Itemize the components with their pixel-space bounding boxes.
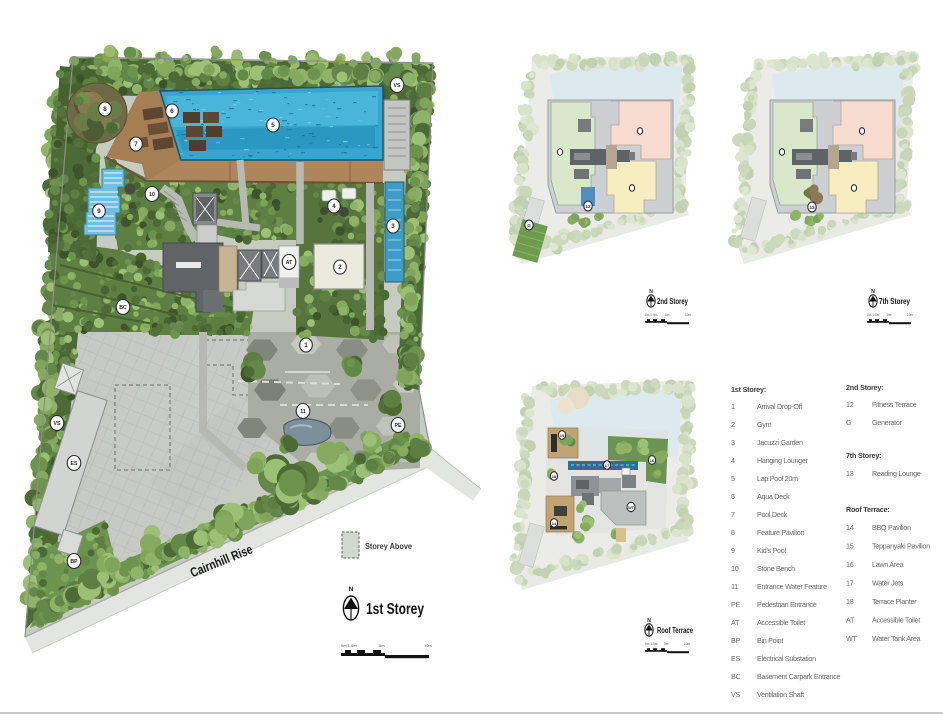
svg-text:ES: ES	[731, 654, 740, 663]
svg-text:6: 6	[170, 108, 174, 115]
svg-text:BC: BC	[119, 305, 127, 311]
svg-text:10m: 10m	[685, 313, 692, 317]
svg-text:10m: 10m	[684, 642, 691, 646]
svg-text:N: N	[349, 586, 354, 593]
svg-text:5m: 5m	[887, 313, 892, 317]
svg-text:10m: 10m	[424, 643, 432, 648]
svg-text:7: 7	[731, 510, 735, 519]
svg-text:0m 1.5m: 0m 1.5m	[867, 313, 880, 317]
svg-text:Arrival Drop-Off: Arrival Drop-Off	[757, 402, 802, 411]
svg-text:Ventilation Shaft: Ventilation Shaft	[757, 690, 804, 699]
svg-text:Roof Terrace: Roof Terrace	[657, 626, 693, 635]
svg-text:AT: AT	[731, 618, 740, 627]
svg-text:1: 1	[731, 402, 735, 411]
svg-text:0m 1.5m: 0m 1.5m	[645, 313, 658, 317]
svg-text:Accessible Toilet: Accessible Toilet	[872, 616, 920, 625]
svg-text:WT: WT	[846, 634, 857, 643]
svg-text:WT: WT	[628, 506, 634, 510]
svg-text:Water Tank Area: Water Tank Area	[872, 634, 921, 643]
svg-text:10: 10	[149, 192, 155, 198]
svg-text:7th Storey: 7th Storey	[879, 297, 910, 306]
svg-text:Jacuzzi Garden: Jacuzzi Garden	[757, 438, 803, 447]
svg-text:Gym: Gym	[757, 420, 772, 429]
svg-text:G: G	[527, 223, 531, 228]
svg-text:13: 13	[809, 205, 815, 210]
svg-text:2nd Storey:: 2nd Storey:	[846, 383, 883, 392]
svg-text:2: 2	[731, 420, 735, 429]
svg-text:BC: BC	[731, 672, 740, 681]
svg-text:2: 2	[338, 264, 342, 271]
svg-text:Aqua Deck: Aqua Deck	[757, 492, 790, 501]
svg-text:Accessible Toilet: Accessible Toilet	[757, 618, 805, 627]
svg-text:VS: VS	[731, 690, 740, 699]
svg-text:Bin Point: Bin Point	[757, 636, 783, 645]
svg-text:G: G	[846, 418, 852, 427]
svg-text:18: 18	[552, 474, 557, 479]
svg-text:9: 9	[731, 546, 735, 555]
svg-text:15: 15	[560, 433, 565, 438]
svg-text:Kid's Pool: Kid's Pool	[757, 546, 786, 555]
svg-text:10: 10	[731, 564, 739, 573]
svg-text:17: 17	[605, 463, 610, 468]
svg-text:7: 7	[134, 141, 138, 148]
svg-text:Pedestrian Entrance: Pedestrian Entrance	[757, 600, 817, 609]
svg-text:PE: PE	[395, 423, 402, 429]
svg-text:Hanging Lounger: Hanging Lounger	[757, 456, 809, 465]
svg-text:8: 8	[103, 106, 107, 113]
svg-text:Basement Carpark Entrance: Basement Carpark Entrance	[757, 672, 840, 681]
svg-text:9: 9	[97, 208, 101, 215]
svg-text:0m 1.5m: 0m 1.5m	[341, 643, 357, 648]
svg-text:18: 18	[846, 597, 854, 606]
svg-text:5m: 5m	[664, 642, 669, 646]
svg-text:3: 3	[731, 438, 735, 447]
svg-text:1st Storey: 1st Storey	[366, 601, 424, 618]
svg-text:1: 1	[304, 342, 308, 349]
svg-text:6: 6	[731, 492, 735, 501]
svg-text:N: N	[871, 289, 875, 295]
svg-text:BP: BP	[70, 559, 78, 565]
svg-text:Storey Above: Storey Above	[365, 541, 412, 551]
svg-text:Reading Lounge: Reading Lounge	[872, 469, 921, 478]
svg-text:VS: VS	[394, 83, 401, 89]
svg-text:3: 3	[391, 223, 395, 230]
svg-text:4: 4	[332, 203, 336, 210]
svg-text:Teppanyaki Pavilion: Teppanyaki Pavilion	[872, 542, 930, 551]
svg-text:4: 4	[731, 456, 735, 465]
svg-text:BP: BP	[731, 636, 740, 645]
svg-text:Lawn Area: Lawn Area	[872, 560, 904, 569]
svg-text:0m 1.5m: 0m 1.5m	[645, 642, 658, 646]
svg-text:5m: 5m	[379, 643, 385, 648]
svg-text:Lap Pool 20m: Lap Pool 20m	[757, 474, 798, 483]
svg-text:7th Storey:: 7th Storey:	[846, 451, 881, 460]
svg-text:Water Jets: Water Jets	[872, 579, 904, 588]
svg-text:Stone Bench: Stone Bench	[757, 564, 795, 573]
svg-text:AT: AT	[846, 616, 855, 625]
svg-text:Pool Deck: Pool Deck	[757, 510, 788, 519]
svg-text:Roof Terrace:: Roof Terrace:	[846, 505, 890, 514]
svg-text:11: 11	[300, 409, 306, 415]
svg-text:12: 12	[585, 204, 591, 209]
svg-text:16: 16	[846, 560, 854, 569]
svg-text:BBQ Pavilion: BBQ Pavilion	[872, 523, 911, 532]
svg-text:Entrance Water Feature: Entrance Water Feature	[757, 582, 827, 591]
svg-text:VS: VS	[54, 421, 61, 427]
svg-text:17: 17	[846, 579, 854, 588]
svg-text:10m: 10m	[907, 313, 914, 317]
svg-text:N: N	[647, 618, 651, 624]
svg-text:14: 14	[552, 521, 557, 526]
svg-text:5: 5	[731, 474, 735, 483]
svg-text:Fitness Terrace: Fitness Terrace	[872, 400, 917, 409]
svg-text:16: 16	[650, 458, 655, 463]
svg-text:15: 15	[846, 542, 854, 551]
svg-text:Generator: Generator	[872, 418, 903, 427]
svg-text:5: 5	[271, 122, 275, 129]
svg-text:8: 8	[731, 528, 735, 537]
svg-text:11: 11	[731, 582, 738, 591]
svg-text:5m: 5m	[665, 313, 670, 317]
svg-text:Terrace Planter: Terrace Planter	[872, 597, 917, 606]
svg-text:2nd Storey: 2nd Storey	[657, 297, 688, 306]
svg-text:1st Storey:: 1st Storey:	[731, 385, 766, 394]
svg-text:13: 13	[846, 469, 854, 478]
svg-text:ES: ES	[71, 461, 78, 467]
svg-text:PE: PE	[731, 600, 740, 609]
svg-text:Feature Pavilion: Feature Pavilion	[757, 528, 804, 537]
svg-text:12: 12	[846, 400, 854, 409]
svg-text:N: N	[649, 289, 653, 295]
svg-text:14: 14	[846, 523, 854, 532]
svg-text:Electrical Substation: Electrical Substation	[757, 654, 816, 663]
svg-text:AT: AT	[286, 260, 293, 266]
